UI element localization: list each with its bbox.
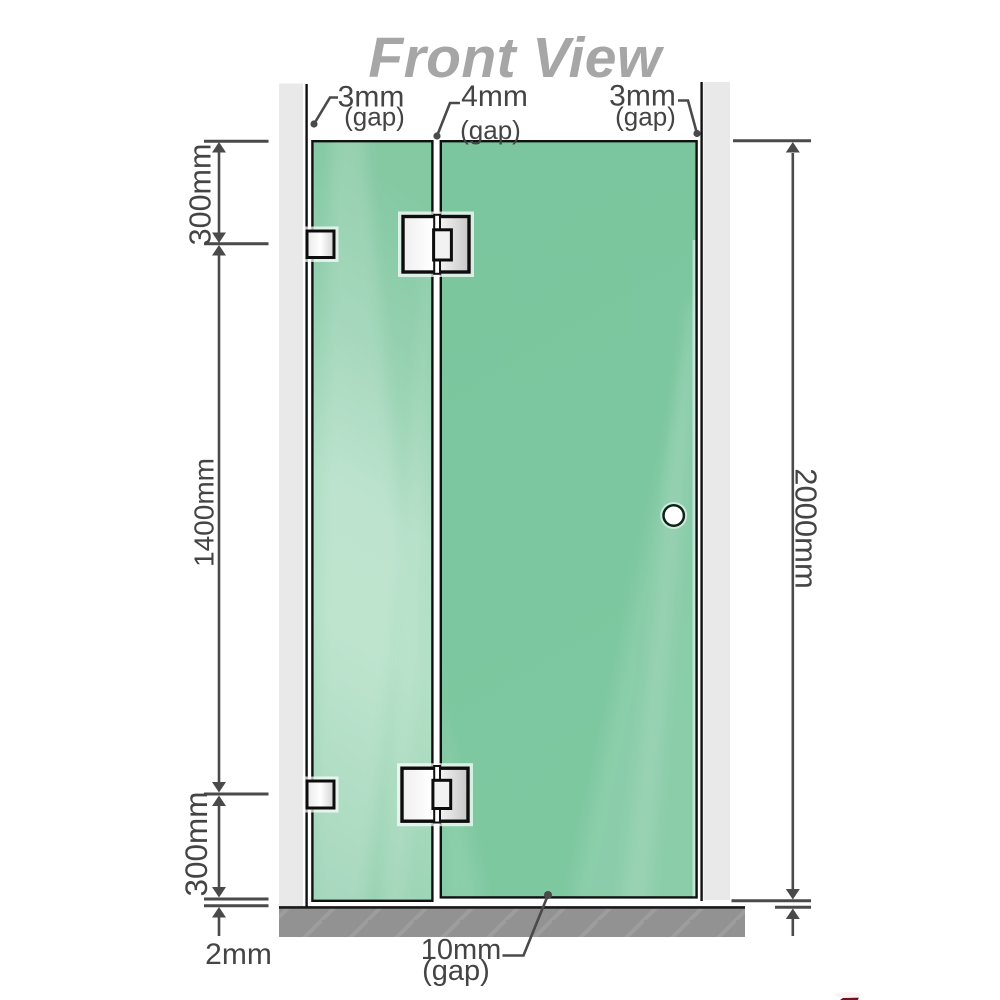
svg-text:(gap): (gap) bbox=[422, 955, 490, 987]
svg-text:2mm: 2mm bbox=[205, 938, 272, 971]
svg-text:4mm: 4mm bbox=[461, 80, 528, 113]
svg-text:2000mm: 2000mm bbox=[789, 468, 824, 589]
svg-text:(gap): (gap) bbox=[615, 102, 676, 132]
svg-text:300mm: 300mm bbox=[178, 791, 214, 896]
svg-text:1400mm: 1400mm bbox=[189, 458, 220, 567]
svg-text:300mm: 300mm bbox=[184, 144, 218, 246]
svg-text:(gap): (gap) bbox=[344, 102, 405, 132]
svg-text:(gap): (gap) bbox=[460, 115, 521, 145]
